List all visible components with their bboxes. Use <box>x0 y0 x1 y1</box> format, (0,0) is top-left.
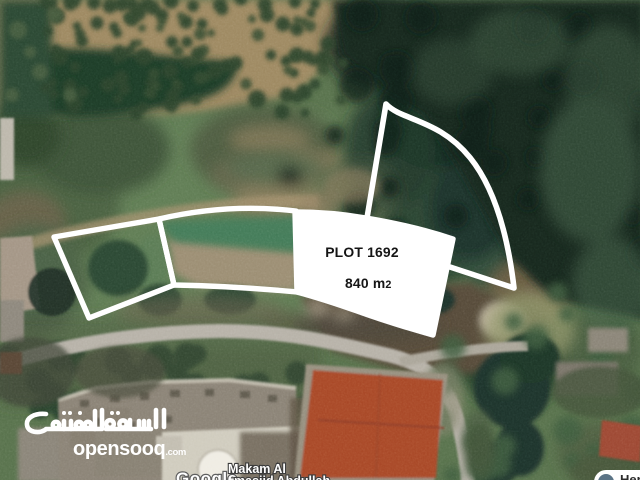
svg-text:PLOT 1692: PLOT 1692 <box>325 244 399 260</box>
svg-text:masjid Abdullah: masjid Abdullah <box>234 474 330 480</box>
svg-text:Her: Her <box>620 472 640 480</box>
svg-text:840 m2: 840 m2 <box>345 275 392 291</box>
